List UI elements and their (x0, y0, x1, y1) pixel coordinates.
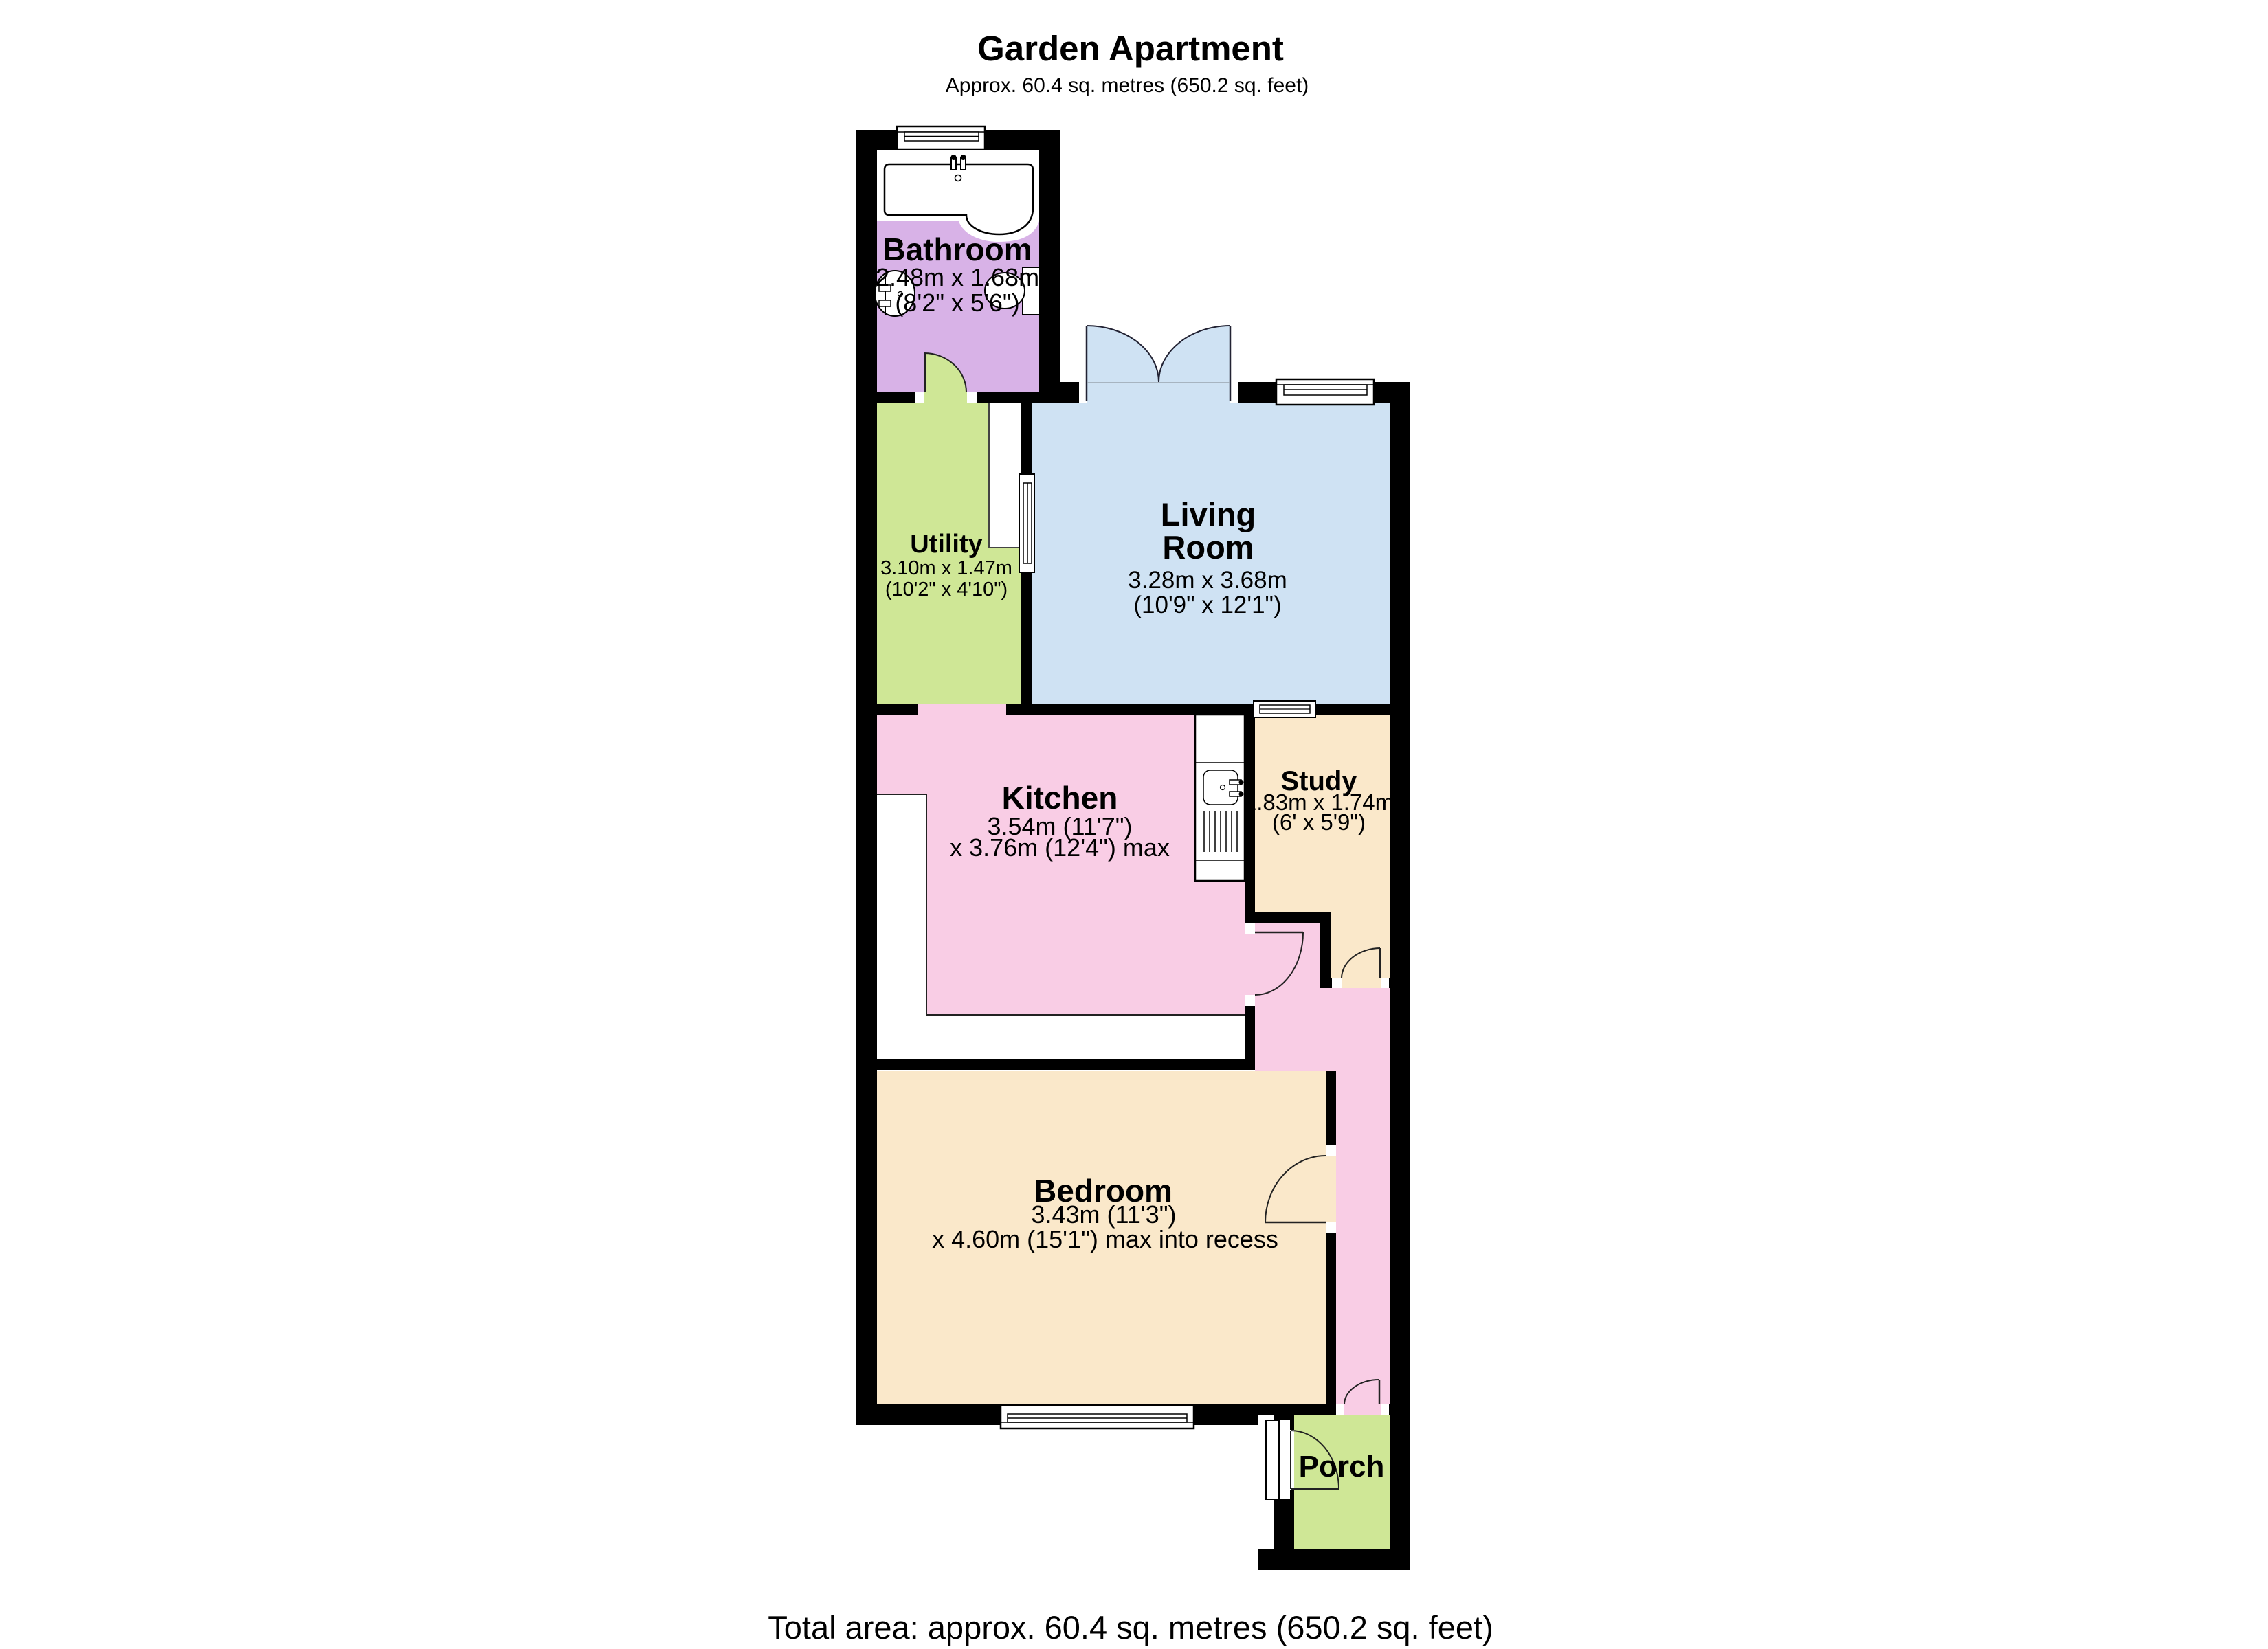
svg-text:3.43m (11'3"): 3.43m (11'3") (1031, 1200, 1176, 1229)
svg-text:Approx. 60.4 sq. metres (650.2: Approx. 60.4 sq. metres (650.2 sq. feet) (946, 74, 1309, 97)
svg-text:x 4.60m (15'1") max into reces: x 4.60m (15'1") max into recess (932, 1225, 1278, 1253)
svg-text:(8'2" x 5'6"): (8'2" x 5'6") (895, 289, 1019, 317)
svg-text:Utility: Utility (910, 530, 983, 559)
svg-text:x 3.76m (12'4") max: x 3.76m (12'4") max (950, 833, 1170, 862)
svg-text:Room: Room (1162, 529, 1254, 565)
svg-text:3.28m x 3.68m: 3.28m x 3.68m (1128, 567, 1287, 594)
svg-text:Kitchen: Kitchen (1002, 780, 1118, 816)
svg-text:(6' x 5'9"): (6' x 5'9") (1272, 809, 1366, 835)
svg-text:(10'2" x 4'10"): (10'2" x 4'10") (885, 579, 1008, 601)
svg-text:3.10m x 1.47m: 3.10m x 1.47m (880, 557, 1012, 579)
svg-text:Living: Living (1161, 496, 1256, 532)
svg-text:Porch: Porch (1299, 1450, 1385, 1483)
svg-text:Total area: approx. 60.4 sq. m: Total area: approx. 60.4 sq. metres (650… (768, 1609, 1493, 1646)
svg-text:2.48m x 1.68m: 2.48m x 1.68m (876, 263, 1039, 291)
svg-text:(10'9" x 12'1"): (10'9" x 12'1") (1133, 592, 1281, 618)
svg-text:Bathroom: Bathroom (882, 232, 1032, 267)
svg-text:Garden Apartment: Garden Apartment (977, 29, 1284, 68)
